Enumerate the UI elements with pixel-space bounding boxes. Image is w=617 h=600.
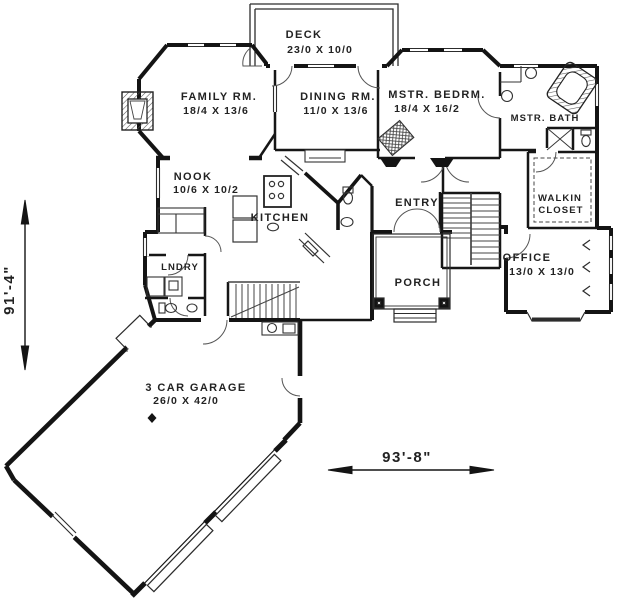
nook-dims: 10/6 X 10/2 (173, 184, 239, 196)
fireplace (122, 92, 153, 130)
garage-label: 3 CAR GARAGE (145, 382, 246, 394)
office-dims: 13/0 X 13/0 (509, 266, 575, 278)
deck-label: DECK (286, 29, 323, 41)
dimension-depth-arrow (21, 200, 28, 370)
master-bedroom-dims: 18/4 X 16/2 (394, 103, 460, 115)
utility-closet (262, 322, 298, 335)
sink-icon (341, 218, 353, 227)
garage-door-edge (132, 440, 286, 596)
kitchen-fixtures (233, 156, 330, 263)
main-stairs (443, 193, 500, 265)
garage-marker (148, 413, 157, 423)
dining-room-dims: 11/0 X 13/6 (303, 105, 368, 117)
entry-powder-fixtures (341, 187, 353, 227)
walkin-closet-label-2: CLOSET (538, 205, 583, 216)
basement-stairs (228, 282, 300, 318)
dimension-width-arrow (328, 466, 494, 473)
bathtub (545, 61, 598, 116)
walkin-closet-label-1: WALKIN (538, 193, 582, 204)
master-bedroom-label: MSTR. BEDRM. (388, 89, 485, 101)
family-room-label: FAMILY RM. (181, 91, 257, 103)
toilet-icon (582, 135, 590, 146)
laundry-label: LNDRY (161, 262, 199, 273)
garage-walls (6, 320, 300, 594)
toilet-icon (344, 192, 353, 204)
dining-niche (305, 150, 345, 162)
floor-plan-page: DECK 23/0 X 10/0 FAMILY RM. 18/4 X 13/6 … (0, 0, 617, 600)
sink-icon (187, 304, 197, 312)
garage-door-panels (147, 454, 281, 591)
master-bath-label: MSTR. BATH (511, 113, 580, 124)
bedroom-rug (378, 121, 414, 156)
deck-outline (250, 4, 398, 66)
family-room-dims: 18/4 X 13/6 (183, 105, 249, 117)
dining-room-label: DINING RM. (300, 91, 376, 103)
deck-dims: 23/0 X 10/0 (287, 44, 353, 56)
porch-label: PORCH (395, 277, 442, 289)
overall-width-label: 93'-8" (382, 449, 432, 466)
garage-dims: 26/0 X 42/0 (153, 395, 219, 407)
master-bath-fixtures (500, 61, 599, 150)
floor-plan-drawing: DECK 23/0 X 10/0 FAMILY RM. 18/4 X 13/6 … (0, 0, 617, 600)
entry-label: ENTRY (395, 197, 439, 209)
kitchen-label: KITCHEN (251, 212, 310, 224)
hall-powder-fixtures (159, 303, 197, 313)
nook-label: NOOK (174, 171, 213, 183)
office-label: OFFICE (503, 252, 552, 264)
overall-depth-label: 91'-4" (1, 265, 18, 315)
